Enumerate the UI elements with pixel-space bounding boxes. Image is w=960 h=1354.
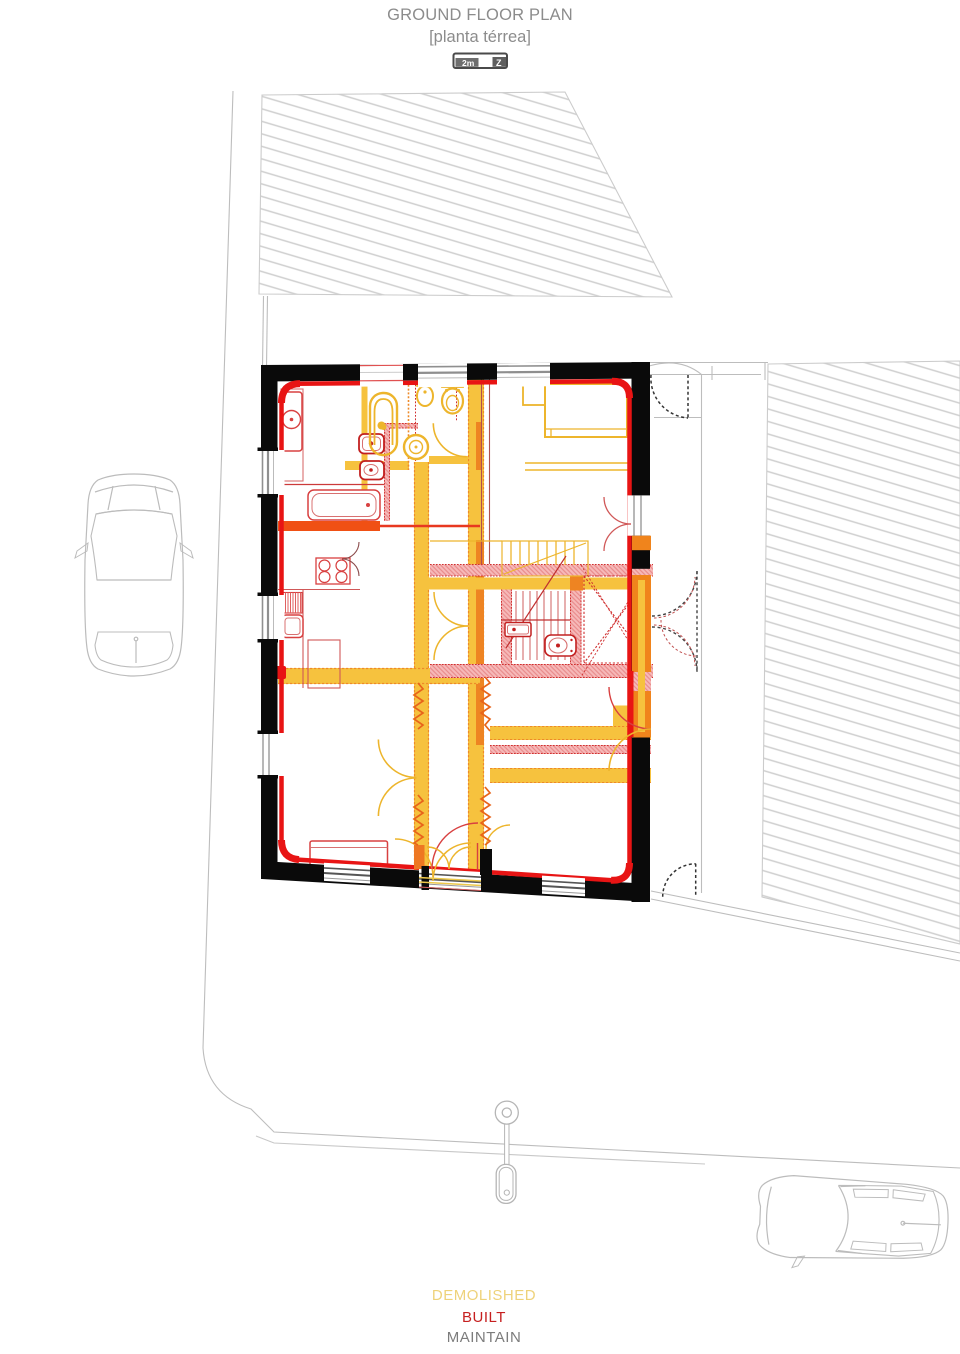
svg-text:2m: 2m: [462, 58, 475, 68]
svg-text:Z: Z: [496, 58, 502, 68]
